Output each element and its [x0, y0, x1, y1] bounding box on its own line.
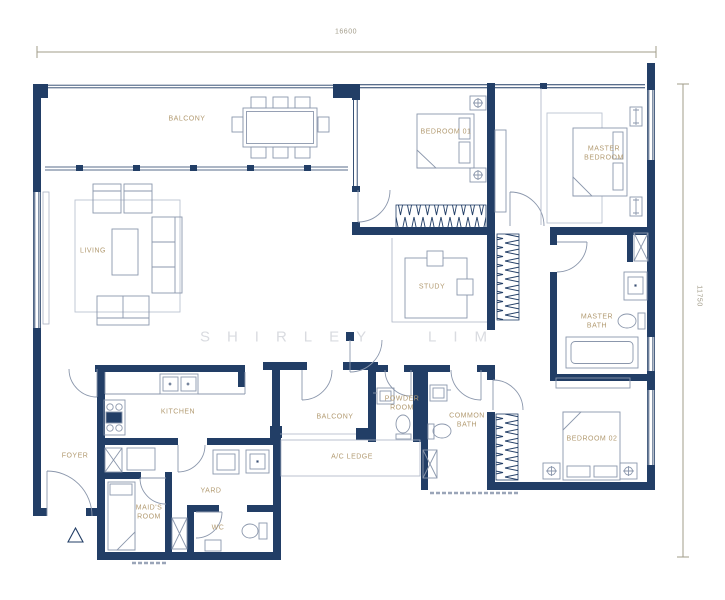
armchair [93, 184, 121, 213]
wc-sink [205, 540, 221, 551]
room-label-common-bath: COMMON BATH [445, 412, 489, 430]
room-label-master-bedroom: MASTER BEDROOM [577, 145, 631, 163]
dimension-height-label: 11750 [696, 285, 703, 306]
door-bedroom01 [358, 190, 390, 222]
master-bedroom-furniture [547, 107, 642, 223]
vanity [624, 272, 647, 300]
bed [563, 412, 620, 480]
room-label-kitchen: KITCHEN [161, 409, 195, 418]
door-master-bath [557, 242, 587, 272]
armchair [124, 184, 152, 213]
door-bedroom02 [493, 380, 523, 410]
yard-fixtures [213, 450, 269, 474]
room-label-foyer: FOYER [62, 453, 89, 462]
lamp-table [630, 197, 642, 216]
balcony-pier-left [33, 84, 48, 98]
bedroom01-furniture [417, 96, 486, 182]
sliding-door-track [45, 165, 348, 171]
nightstand [470, 96, 486, 110]
master-bath-fixtures [566, 233, 648, 368]
door-balcony-lower [302, 370, 332, 400]
stove [104, 400, 125, 435]
room-label-wc: WC [212, 525, 225, 534]
chair [427, 251, 443, 266]
bedroom02-furniture [543, 378, 637, 480]
door-maids-room [140, 478, 166, 504]
dining-table-set [232, 97, 329, 158]
room-label-ac-ledge: A/C LEDGE [331, 454, 373, 463]
wardrobe-bedroom01 [396, 205, 486, 228]
counter [127, 448, 155, 470]
room-label-bedroom01: BEDROOM 01 [421, 129, 472, 138]
nightstand [620, 463, 637, 479]
dimension-width-label: 16600 [335, 29, 357, 36]
watermark: SHIRLEY LIM [200, 329, 504, 346]
room-label-maids-room: MAID'S ROOM [130, 504, 168, 522]
room-label-powder-room: POWDER ROOM [381, 395, 423, 413]
walls [33, 63, 655, 560]
shaft-kitchen [105, 448, 122, 472]
common-sink [430, 385, 447, 401]
door-yard [178, 445, 205, 472]
shower [634, 233, 648, 261]
floorplan-canvas: 16600 11750 SHIRLEY LIM BALCONY BEDROOM … [0, 0, 725, 600]
chair [457, 279, 473, 295]
toilet-master [618, 313, 645, 329]
floorplan-drawing [0, 0, 725, 600]
coffee-table [112, 229, 138, 275]
bathtub [566, 337, 638, 368]
shaft-wc [172, 518, 187, 549]
door-common-bath [451, 370, 481, 400]
room-label-study: STUDY [419, 284, 445, 293]
room-label-yard: YARD [201, 488, 222, 497]
shower-partition [627, 232, 633, 262]
door-foyer-living [69, 369, 97, 397]
balcony-pier-right [333, 84, 353, 98]
wardrobe-corridor [497, 234, 519, 320]
sliding-door-leaf [495, 130, 506, 212]
room-label-living: LIVING [80, 248, 106, 257]
entrance-marker [68, 528, 83, 542]
sofa-3seat [152, 217, 182, 293]
toilet-wc [242, 523, 267, 539]
room-label-bedroom02: BEDROOM 02 [567, 436, 618, 445]
kitchen-fixtures [104, 372, 245, 472]
door-master-bedroom [510, 192, 544, 226]
room-label-balcony-top: BALCONY [169, 116, 206, 125]
room-label-balcony-lower: BALCONY [317, 414, 354, 423]
door-entrance [47, 471, 92, 516]
room-label-master-bath: MASTER BATH [575, 313, 619, 331]
door-powder-room [385, 370, 411, 396]
lamp-table [630, 107, 642, 126]
nightstand [543, 463, 560, 479]
wardrobe-bedroom02 [496, 414, 518, 480]
nightstand [470, 168, 486, 182]
toilet-powder [396, 415, 411, 439]
window-inner-line [43, 192, 49, 324]
